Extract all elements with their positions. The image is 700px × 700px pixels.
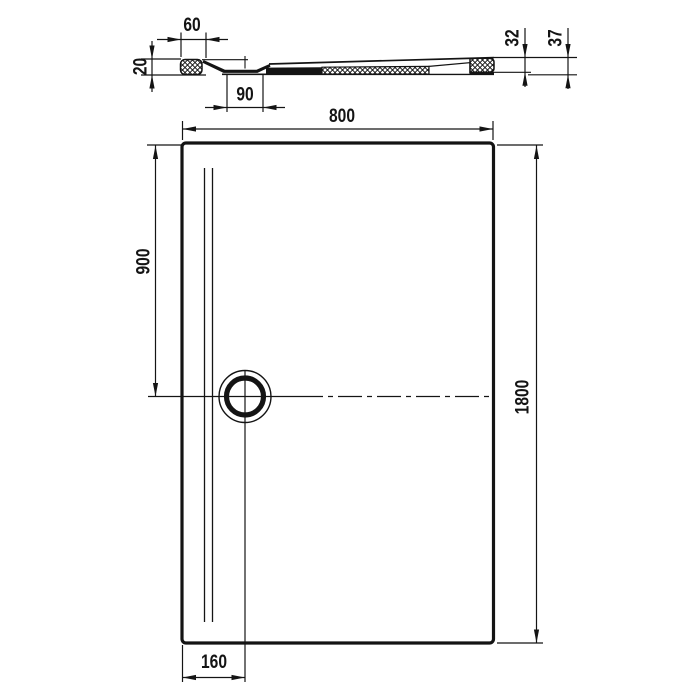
section-left-rim-block bbox=[181, 60, 203, 75]
section-body-hatched bbox=[322, 66, 429, 74]
arrowhead bbox=[149, 75, 154, 89]
arrowhead bbox=[534, 630, 539, 644]
dim-label-800: 800 bbox=[329, 105, 355, 127]
arrowhead bbox=[153, 383, 158, 397]
arrowhead bbox=[183, 126, 197, 131]
dim-label-160: 160 bbox=[201, 651, 227, 673]
arrowhead bbox=[534, 146, 539, 160]
arrowhead bbox=[214, 105, 228, 110]
section-right-rim-block bbox=[470, 58, 494, 72]
dimension-60 bbox=[157, 33, 228, 59]
dim-label-32: 32 bbox=[501, 29, 523, 46]
arrowhead bbox=[263, 105, 277, 110]
arrowhead bbox=[565, 44, 570, 58]
arrowhead bbox=[168, 37, 182, 42]
arrowhead bbox=[153, 146, 158, 160]
technical-drawing-canvas: 60 20 90 32 37 800 900 1800 160 bbox=[0, 0, 700, 700]
arrowhead bbox=[522, 44, 527, 58]
arrowhead bbox=[480, 126, 494, 131]
arrowhead bbox=[565, 75, 570, 89]
section-body-open bbox=[429, 63, 470, 75]
section-drain-recess bbox=[203, 60, 271, 73]
arrowhead bbox=[206, 37, 220, 42]
dim-label-20: 20 bbox=[129, 58, 151, 75]
section-body-solid bbox=[266, 67, 322, 74]
shower-tray-drawing: 60 20 90 32 37 800 900 1800 160 bbox=[0, 0, 700, 700]
arrowhead bbox=[149, 46, 154, 60]
arrowhead bbox=[232, 675, 246, 680]
arrowhead bbox=[522, 72, 527, 86]
dim-label-90: 90 bbox=[236, 83, 253, 105]
dim-label-1800: 1800 bbox=[511, 380, 533, 415]
dim-label-60: 60 bbox=[183, 14, 200, 36]
dim-label-37: 37 bbox=[544, 29, 566, 46]
arrowhead bbox=[183, 675, 197, 680]
section-profile bbox=[181, 56, 495, 75]
plan-view bbox=[147, 121, 543, 682]
dim-label-900: 900 bbox=[132, 249, 154, 275]
